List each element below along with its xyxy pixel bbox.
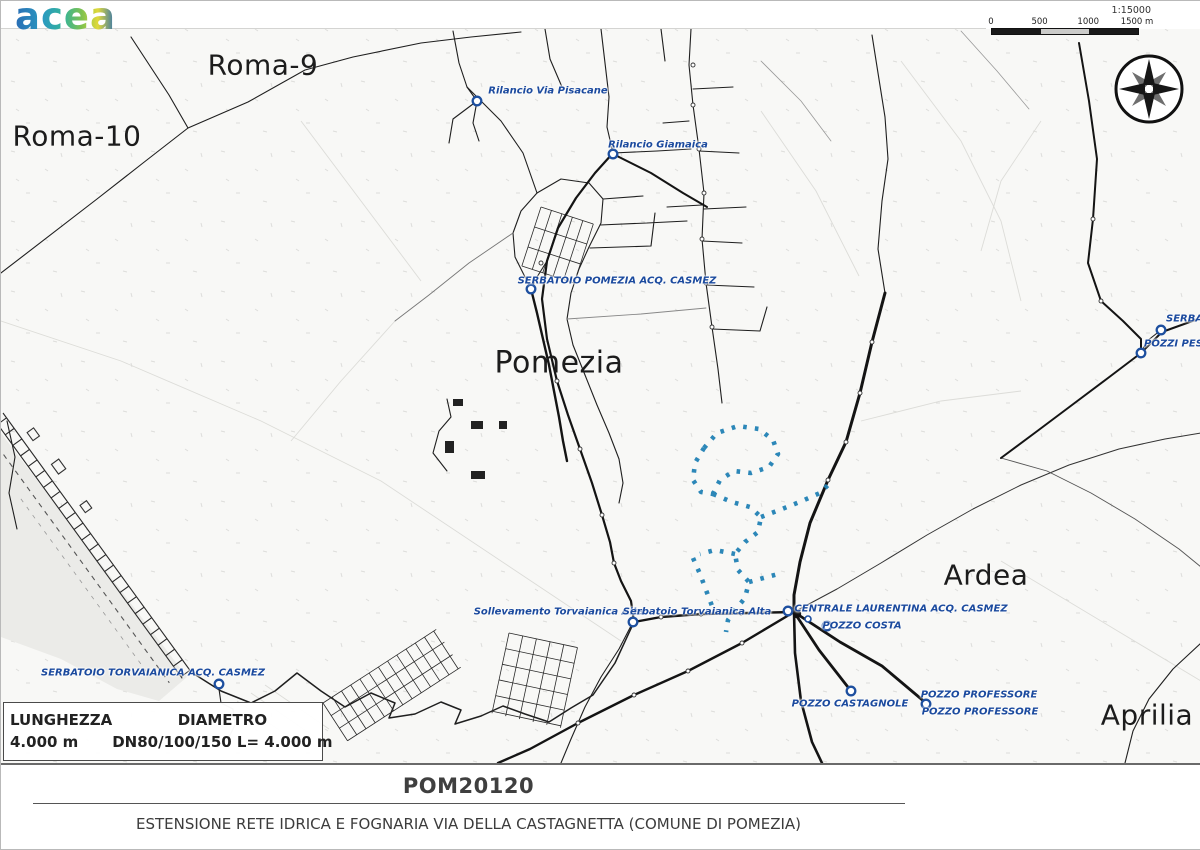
scale-tick: 1000 (1077, 17, 1099, 27)
compass-rose-icon (1115, 55, 1183, 123)
marker-pozzo-professore (922, 700, 931, 709)
info-box: LUNGHEZZA 4.000 m DIAMETRO DN80/100/150 … (3, 702, 323, 761)
scale-tick-labels: 050010001500 m (991, 17, 1137, 28)
title-divider (33, 803, 905, 804)
scale-strip (991, 28, 1139, 35)
map-sheet: acea 1:15000 050010001500 m Roma-9Roma-1… (0, 0, 1200, 850)
scale-tick: 500 (1031, 17, 1047, 27)
marker-sollevamento-torvaianica-alta (629, 618, 638, 627)
marker-centrale-laurentina (784, 607, 793, 616)
scale-ratio: 1:15000 (1112, 5, 1151, 16)
diameter-label: DIAMETRO (112, 709, 332, 731)
marker-serbatoio-torvaianica (215, 680, 224, 689)
marker-rilancio-via-pisacane (473, 97, 482, 106)
diameter-value: DN80/100/150 L= 4.000 m (112, 731, 332, 753)
acea-logo: acea (15, 0, 116, 38)
length-value: 4.000 m (10, 731, 112, 753)
drawing-title: ESTENSIONE RETE IDRICA E FOGNARIA VIA DE… (1, 815, 936, 833)
marker-pozzo-castagnole (847, 687, 856, 696)
scale-bar: 1:15000 050010001500 m (991, 5, 1151, 35)
title-block: POM20120 ESTENSIONE RETE IDRICA E FOGNAR… (1, 763, 1200, 849)
marker-serbatoio-pomezia (527, 285, 536, 294)
scale-tick: 0 (988, 17, 993, 27)
length-label: LUNGHEZZA (10, 709, 112, 731)
marker-serbatoio-edge (1157, 326, 1166, 335)
drawing-code: POM20120 (1, 774, 936, 798)
marker-pozzo-costa (823, 622, 832, 631)
marker-pozzi-pescarella (1137, 349, 1146, 358)
marker-rilancio-giamaica (609, 150, 618, 159)
junction-node (793, 610, 801, 618)
header-divider (1, 28, 986, 29)
scale-tick: 1500 m (1121, 17, 1154, 27)
marker-small-node (805, 616, 811, 622)
